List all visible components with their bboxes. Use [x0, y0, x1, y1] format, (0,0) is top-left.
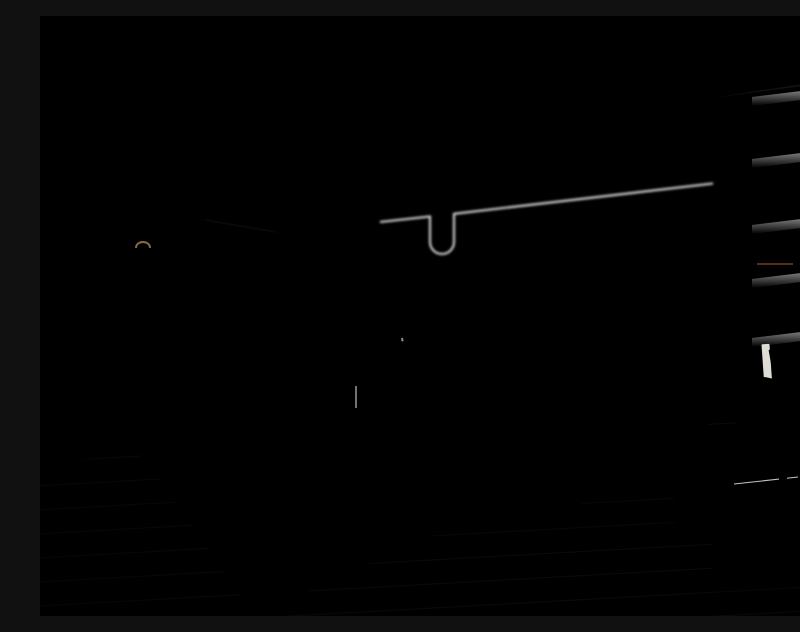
bedroom-photo: [40, 16, 800, 616]
vignette: [40, 16, 800, 616]
